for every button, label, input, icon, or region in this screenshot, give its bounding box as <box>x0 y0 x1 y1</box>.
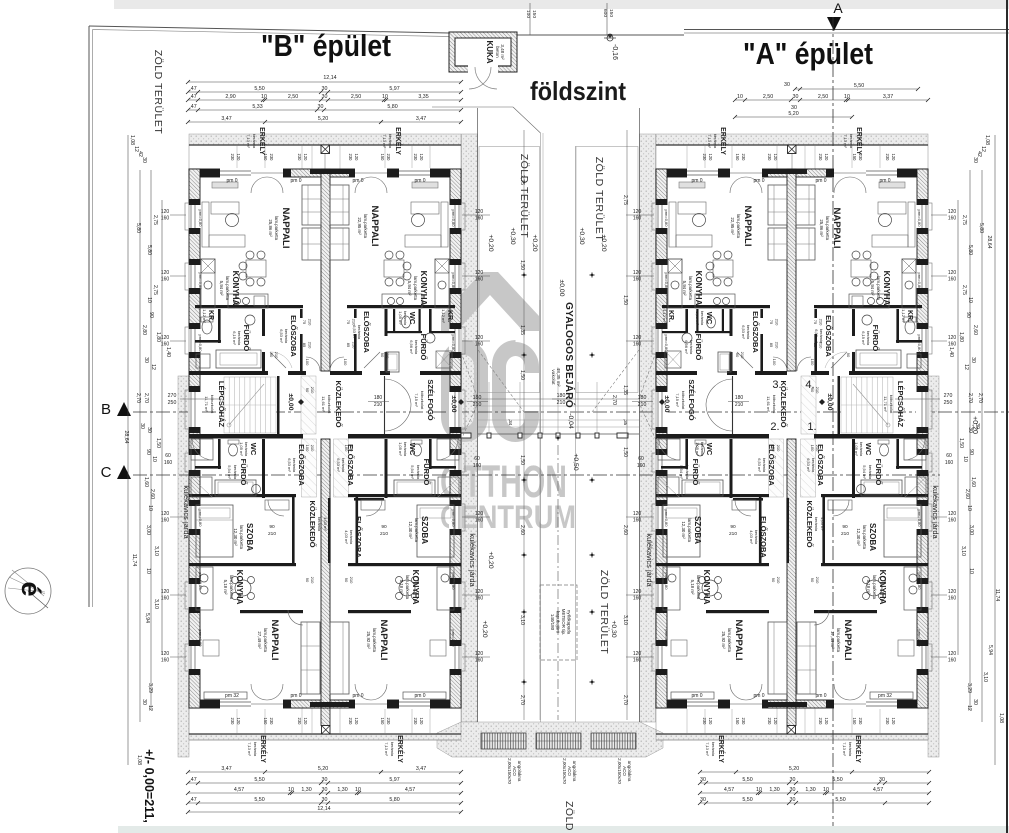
svg-text:120: 120 <box>708 718 713 726</box>
svg-text:210: 210 <box>473 402 482 408</box>
svg-text:12: 12 <box>150 364 156 370</box>
svg-text:30: 30 <box>972 699 978 705</box>
svg-text:10: 10 <box>968 568 974 574</box>
svg-text:5,94 m²: 5,94 m² <box>219 281 224 296</box>
svg-text:160: 160 <box>473 463 482 469</box>
svg-text:angolakna: angolakna <box>627 761 632 782</box>
svg-text:60: 60 <box>638 456 644 462</box>
svg-text:KR.: KR. <box>207 310 214 322</box>
svg-text:120: 120 <box>633 335 642 341</box>
svg-text:ACO: ACO <box>622 766 627 776</box>
svg-text:ELŐSZOBA: ELŐSZOBA <box>354 516 363 558</box>
svg-text:kapubejáró: kapubejáró <box>556 611 561 634</box>
svg-text:230: 230 <box>230 718 235 726</box>
svg-text:90: 90 <box>730 524 736 530</box>
svg-text:210: 210 <box>352 319 357 326</box>
svg-text:5,50: 5,50 <box>742 797 752 803</box>
svg-text:3,48 m²: 3,48 m² <box>500 44 505 60</box>
svg-text:160: 160 <box>948 216 957 222</box>
svg-text:160: 160 <box>633 658 642 664</box>
svg-text:NAPPALI: NAPPALI <box>269 620 280 661</box>
svg-text:pm 0: pm 0 <box>753 693 764 699</box>
svg-text:160: 160 <box>637 463 646 469</box>
svg-text:NAPPALI: NAPPALI <box>369 206 380 247</box>
svg-text:pm 0: pm 0 <box>290 693 301 699</box>
svg-text:230: 230 <box>413 154 418 162</box>
svg-text:4,57: 4,57 <box>405 787 415 793</box>
svg-text:7,13 m²: 7,13 m² <box>246 134 251 148</box>
svg-text:75: 75 <box>769 320 774 325</box>
svg-text:210: 210 <box>735 402 744 408</box>
svg-text:ERKÉLY: ERKÉLY <box>855 127 864 155</box>
svg-text:25,86 m²: 25,86 m² <box>268 219 273 237</box>
svg-text:NAPPALI: NAPPALI <box>831 208 842 249</box>
svg-text:+0,30: +0,30 <box>509 227 516 244</box>
svg-text:90: 90 <box>846 353 851 358</box>
svg-text:pm 0: pm 0 <box>290 178 301 184</box>
svg-text:A: A <box>833 0 843 16</box>
svg-text:+0,30: +0,30 <box>578 227 585 244</box>
svg-text:160: 160 <box>475 596 484 602</box>
svg-text:120: 120 <box>303 718 308 726</box>
svg-text:1,60: 1,60 <box>143 477 149 487</box>
svg-text:,47: ,47 <box>189 797 196 803</box>
svg-text:1,12 m²: 1,12 m² <box>202 309 207 323</box>
svg-text:2,70: 2,70 <box>135 393 141 403</box>
svg-text:SZOBA: SZOBA <box>693 516 702 544</box>
svg-text:27,49 m²: 27,49 m² <box>830 631 835 649</box>
svg-text:KONYHA: KONYHA <box>878 570 887 605</box>
svg-text:30: 30 <box>790 797 796 803</box>
svg-text:1,35: 1,35 <box>519 325 525 335</box>
svg-text:120: 120 <box>419 718 424 726</box>
svg-text:KONYHA: KONYHA <box>419 271 428 306</box>
svg-text:ACO: ACO <box>512 766 517 776</box>
svg-text:210: 210 <box>268 531 276 537</box>
svg-text:1,30: 1,30 <box>805 787 815 793</box>
svg-text:lam.parketta: lam.parketta <box>727 628 732 653</box>
svg-text:120: 120 <box>773 154 778 162</box>
svg-text:lam.parketta: lam.parketta <box>688 276 693 301</box>
svg-text:7,13 m²: 7,13 m² <box>382 134 387 148</box>
svg-text:1,50: 1,50 <box>519 455 525 465</box>
svg-text:30: 30 <box>972 157 978 163</box>
svg-text:WC: WC <box>705 443 714 456</box>
svg-text:5,50: 5,50 <box>254 86 264 92</box>
svg-text:210: 210 <box>274 352 279 359</box>
svg-text:3,10: 3,10 <box>960 546 966 556</box>
svg-text:+0,20: +0,20 <box>971 416 978 434</box>
svg-text:11,61 m²: 11,61 m² <box>766 396 771 412</box>
svg-text:KR.: KR. <box>446 310 453 322</box>
svg-text:NAPPALI: NAPPALI <box>733 620 744 661</box>
svg-text:+0,20: +0,20 <box>487 551 494 568</box>
svg-text:1,12 m²: 1,12 m² <box>662 309 667 323</box>
svg-text:ELŐSZOBA: ELŐSZOBA <box>824 315 833 357</box>
svg-text:ZÖLD TERÜLET: ZÖLD TERÜLET <box>152 50 164 135</box>
svg-text:25,92 m²: 25,92 m² <box>721 631 726 649</box>
svg-text:90: 90 <box>965 312 971 318</box>
svg-text:lam.parketta: lam.parketta <box>736 214 741 239</box>
svg-text:kerámia: kerámia <box>685 465 690 480</box>
svg-text:160: 160 <box>164 460 173 466</box>
svg-text:ELŐSZOBA: ELŐSZOBA <box>759 516 768 558</box>
svg-text:10: 10 <box>147 505 153 511</box>
svg-text:"A" épület: "A" épület <box>743 36 873 71</box>
svg-text:160: 160 <box>161 596 170 602</box>
svg-text:100: 100 <box>810 359 815 366</box>
svg-text:150: 150 <box>263 154 268 162</box>
svg-text:prm=0,80: prm=0,80 <box>198 272 203 290</box>
svg-text:5,94: 5,94 <box>987 645 993 655</box>
svg-text:160: 160 <box>948 658 957 664</box>
svg-text:köburkolat: köburkolat <box>681 391 686 410</box>
svg-text:4,57: 4,57 <box>234 787 244 793</box>
svg-text:230: 230 <box>297 718 302 726</box>
svg-text:1,05 m²: 1,05 m² <box>239 442 244 456</box>
svg-text:30: 30 <box>322 787 328 793</box>
svg-text:+0,20: +0,20 <box>481 620 488 637</box>
svg-text:10: 10 <box>967 297 973 303</box>
svg-text:ERKÉLY: ERKÉLY <box>719 127 728 155</box>
svg-text:2,75: 2,75 <box>152 215 158 225</box>
svg-text:,47: ,47 <box>189 86 196 92</box>
svg-text:210: 210 <box>308 319 313 326</box>
svg-text:100: 100 <box>305 445 310 452</box>
svg-text:köburkolat: köburkolat <box>210 395 215 414</box>
svg-text:30: 30 <box>139 423 145 429</box>
svg-text:120: 120 <box>161 511 170 517</box>
svg-text:kerámia: kerámia <box>416 465 421 480</box>
svg-text:2,00x150x70: 2,00x150x70 <box>507 758 512 784</box>
svg-text:+0,30: +0,30 <box>610 620 617 637</box>
svg-text:prm=0,80: prm=0,80 <box>917 209 922 227</box>
svg-text:22,95 m²: 22,95 m² <box>730 217 735 235</box>
svg-text:12,30 m²: 12,30 m² <box>233 528 238 546</box>
svg-text:WC: WC <box>864 443 873 456</box>
svg-text:230: 230 <box>230 154 235 162</box>
svg-text:prm=0,80: prm=0,80 <box>198 509 203 527</box>
svg-text:75: 75 <box>346 320 351 325</box>
svg-text:210: 210 <box>819 342 824 349</box>
svg-text:120: 120 <box>236 718 241 726</box>
svg-text:2,60: 2,60 <box>964 489 970 499</box>
svg-text:1,30: 1,30 <box>769 787 779 793</box>
svg-text:5,20: 5,20 <box>318 116 328 122</box>
svg-text:prm=0,80: prm=0,80 <box>664 509 669 527</box>
svg-text:150: 150 <box>735 154 740 162</box>
svg-text:5,20: 5,20 <box>789 766 799 772</box>
svg-text:160: 160 <box>475 658 484 664</box>
svg-text:köburkolat: köburkolat <box>889 395 894 414</box>
svg-text:210: 210 <box>310 577 315 584</box>
svg-text:2,50: 2,50 <box>288 94 298 100</box>
svg-text:230: 230 <box>885 718 890 726</box>
svg-text:150: 150 <box>852 154 857 162</box>
svg-text:230: 230 <box>767 718 772 726</box>
svg-text:230: 230 <box>413 718 418 726</box>
svg-text:150: 150 <box>531 10 537 18</box>
svg-text:150: 150 <box>608 9 614 17</box>
svg-text:230: 230 <box>386 718 391 726</box>
svg-text:±0,00: ±0,00 <box>826 394 833 411</box>
svg-text:prm=0,80: prm=0,80 <box>198 334 203 352</box>
svg-text:prm=0,80: prm=0,80 <box>198 209 203 227</box>
svg-text:2,60: 2,60 <box>149 489 155 499</box>
svg-text:7,13 m²: 7,13 m² <box>247 742 252 756</box>
svg-text:2,70: 2,70 <box>519 695 525 705</box>
svg-text:pm 0: pm 0 <box>226 178 237 184</box>
svg-text:ELŐSZOBA: ELŐSZOBA <box>362 311 371 353</box>
svg-text:30: 30 <box>146 427 152 433</box>
svg-text:prm=0,80: prm=0,80 <box>451 334 456 352</box>
svg-text:2,50: 2,50 <box>351 94 361 100</box>
svg-text:NAPPALI: NAPPALI <box>378 620 389 661</box>
svg-text:METEOR tip.: METEOR tip. <box>561 609 566 636</box>
svg-text:3,29: 3,29 <box>966 683 972 693</box>
svg-text:230: 230 <box>348 154 353 162</box>
svg-text:FÜRDŐ: FÜRDŐ <box>422 459 431 486</box>
svg-text:lam.parketta: lam.parketta <box>229 575 234 600</box>
svg-text:lam.parketta: lam.parketta <box>836 628 841 653</box>
svg-text:12,30 m²: 12,30 m² <box>681 521 686 539</box>
svg-text:KÖZLEKEDŐ: KÖZLEKEDŐ <box>308 500 317 547</box>
svg-text:WC: WC <box>408 312 417 325</box>
svg-text:1,08: 1,08 <box>136 755 142 765</box>
svg-text:100: 100 <box>771 445 776 452</box>
svg-text:kerámia: kerámia <box>388 134 393 149</box>
svg-text:1,50: 1,50 <box>155 438 161 448</box>
svg-text:5,50: 5,50 <box>835 797 845 803</box>
svg-text:210: 210 <box>740 352 745 359</box>
svg-text:5,20: 5,20 <box>318 766 328 772</box>
svg-text:ZÖLD: ZÖLD <box>563 801 575 831</box>
svg-text:prm=0,80: prm=0,80 <box>451 572 456 590</box>
svg-text:60: 60 <box>946 453 952 459</box>
svg-text:30: 30 <box>322 777 328 783</box>
svg-text:prm=0,80: prm=0,80 <box>198 572 203 590</box>
svg-text:30: 30 <box>879 777 885 783</box>
svg-text:90: 90 <box>269 524 275 530</box>
svg-text:90: 90 <box>968 449 974 455</box>
svg-text:pm 0: pm 0 <box>414 178 425 184</box>
svg-text:120: 120 <box>475 589 484 595</box>
svg-text:prm=0,80: prm=0,80 <box>917 629 922 647</box>
svg-text:150: 150 <box>380 718 385 726</box>
svg-text:kerámia: kerámia <box>814 517 819 532</box>
svg-text:4,57: 4,57 <box>724 787 734 793</box>
svg-text:100: 100 <box>343 359 348 366</box>
svg-text:5,50: 5,50 <box>854 83 864 89</box>
svg-text:2,50: 2,50 <box>763 94 773 100</box>
svg-text:100: 100 <box>305 359 310 366</box>
svg-text:210: 210 <box>349 577 354 584</box>
svg-text:lam.parketta: lam.parketta <box>263 628 268 653</box>
svg-text:prm=0,80: prm=0,80 <box>451 209 456 227</box>
svg-text:lam.parketta: lam.parketta <box>876 276 881 301</box>
svg-text:230: 230 <box>858 154 863 162</box>
svg-text:230: 230 <box>269 154 274 162</box>
svg-text:42: 42 <box>137 151 143 157</box>
svg-text:lam.parketta: lam.parketta <box>413 276 418 301</box>
svg-text:10: 10 <box>382 94 388 100</box>
svg-text:angolakna: angolakna <box>572 761 577 782</box>
svg-text:28,64: 28,64 <box>986 236 992 249</box>
svg-text:42: 42 <box>976 151 982 157</box>
svg-text:KÖZLEKEDŐ: KÖZLEKEDŐ <box>805 500 814 547</box>
svg-text:2,00x150x70: 2,00x150x70 <box>617 758 622 784</box>
svg-text:köburkolat: köburkolat <box>327 395 332 414</box>
svg-text:C: C <box>101 464 112 481</box>
svg-text:pm 0: pm 0 <box>815 693 826 699</box>
svg-text:FÜRDŐ: FÜRDŐ <box>419 334 428 361</box>
svg-text:lam.parketta: lam.parketta <box>405 575 410 600</box>
svg-text:30: 30 <box>322 94 328 100</box>
svg-text:1,05 m²: 1,05 m² <box>854 442 859 456</box>
svg-text:210: 210 <box>815 577 820 584</box>
svg-text:160: 160 <box>633 518 642 524</box>
svg-text:75: 75 <box>813 320 818 325</box>
svg-text:3,10: 3,10 <box>519 615 525 625</box>
svg-text:3,47: 3,47 <box>221 116 231 122</box>
svg-text:SZÉLFOGÓ: SZÉLFOGÓ <box>426 379 435 420</box>
svg-text:4,03 m²: 4,03 m² <box>323 517 328 531</box>
svg-text:KÖZLEKEDŐ: KÖZLEKEDŐ <box>334 380 343 427</box>
svg-text:ERKÉLY: ERKÉLY <box>717 735 726 763</box>
svg-text:160: 160 <box>945 460 954 466</box>
svg-text:5,80: 5,80 <box>146 245 152 255</box>
svg-text:6,53 m²: 6,53 m² <box>814 329 819 343</box>
svg-text:2,70: 2,70 <box>143 393 149 403</box>
svg-text:120: 120 <box>633 209 642 215</box>
svg-text:120: 120 <box>633 589 642 595</box>
svg-text:90: 90 <box>810 578 815 583</box>
svg-text:kerámia: kerámia <box>848 742 853 757</box>
svg-text:2,00x150x70: 2,00x150x70 <box>562 758 567 784</box>
svg-text:6,96 m²: 6,96 m² <box>684 340 689 354</box>
svg-text:5,50: 5,50 <box>742 777 752 783</box>
svg-text:3,35: 3,35 <box>418 94 428 100</box>
svg-text:lam.parketta: lam.parketta <box>239 525 244 550</box>
svg-text:1,60: 1,60 <box>970 477 976 487</box>
svg-text:10: 10 <box>962 456 968 462</box>
svg-text:1,30: 1,30 <box>301 787 311 793</box>
svg-text:230: 230 <box>702 718 707 726</box>
svg-text:7,13 m²: 7,13 m² <box>843 134 848 148</box>
svg-text:210: 210 <box>776 577 781 584</box>
svg-text:120: 120 <box>161 209 170 215</box>
svg-text:pm 32: pm 32 <box>225 693 239 699</box>
svg-text:prm=0,80: prm=0,80 <box>917 572 922 590</box>
svg-text:210: 210 <box>815 445 820 452</box>
svg-text:1,12 m²: 1,12 m² <box>441 309 446 323</box>
svg-text:6,53 m²: 6,53 m² <box>336 458 341 472</box>
svg-text:160: 160 <box>633 342 642 348</box>
svg-text:5,94 m²: 5,94 m² <box>410 465 415 479</box>
svg-text:NAPPALI: NAPPALI <box>280 208 291 249</box>
svg-text:22,95 m²: 22,95 m² <box>357 217 362 235</box>
svg-text:köburkolat: köburkolat <box>420 391 425 410</box>
svg-text:WC: WC <box>408 443 417 456</box>
svg-text:30: 30 <box>318 104 324 110</box>
svg-text:+/- 0,00=211,: +/- 0,00=211, <box>142 749 156 823</box>
svg-text:120: 120 <box>708 154 713 162</box>
svg-text:KONYHA: KONYHA <box>235 570 244 605</box>
svg-text:5,94: 5,94 <box>144 613 150 623</box>
svg-text:10: 10 <box>145 568 151 574</box>
svg-text:30: 30 <box>143 357 149 363</box>
svg-text:6,53 m²: 6,53 m² <box>757 458 762 472</box>
svg-text:30: 30 <box>322 86 328 92</box>
svg-text:120: 120 <box>948 335 957 341</box>
svg-text:12: 12 <box>147 705 153 711</box>
svg-text:prm=0,80: prm=0,80 <box>664 572 669 590</box>
svg-text:27,49 m²: 27,49 m² <box>257 631 262 649</box>
svg-text:3,47: 3,47 <box>416 766 426 772</box>
svg-text:160: 160 <box>161 216 170 222</box>
svg-text:120: 120 <box>475 511 484 517</box>
svg-text:5,50: 5,50 <box>832 777 842 783</box>
svg-text:230: 230 <box>741 154 746 162</box>
svg-text:kerámia: kerámia <box>253 742 258 757</box>
svg-text:1,30: 1,30 <box>337 787 347 793</box>
svg-text:210: 210 <box>352 342 357 349</box>
svg-text:230: 230 <box>741 718 746 726</box>
svg-text:2,60: 2,60 <box>519 525 525 535</box>
svg-text:prm=0,80: prm=0,80 <box>198 629 203 647</box>
svg-text:2,75: 2,75 <box>519 175 525 185</box>
svg-text:210: 210 <box>841 531 849 537</box>
svg-text:2,50: 2,50 <box>818 94 828 100</box>
svg-text:160: 160 <box>475 518 484 524</box>
svg-text:lam.parketta: lam.parketta <box>872 575 877 600</box>
svg-text:-0,16: -0,16 <box>611 44 618 60</box>
svg-text:5,94 m²: 5,94 m² <box>679 465 684 479</box>
svg-text:pm 32: pm 32 <box>878 693 892 699</box>
svg-text:nyílókapuda: nyílókapuda <box>567 610 572 635</box>
svg-text:270: 270 <box>944 393 953 399</box>
svg-text:3,37: 3,37 <box>883 94 893 100</box>
svg-text:prm=0,80: prm=0,80 <box>451 629 456 647</box>
svg-text:WC: WC <box>249 443 258 456</box>
svg-text:5,80: 5,80 <box>978 223 984 233</box>
svg-text:1,05 m²: 1,05 m² <box>398 311 403 325</box>
svg-text:12: 12 <box>963 364 969 370</box>
svg-text:90: 90 <box>842 524 848 530</box>
svg-text:±0,00: ±0,00 <box>663 396 670 413</box>
svg-text:90: 90 <box>735 353 740 358</box>
svg-text:120: 120 <box>161 270 170 276</box>
svg-text:150: 150 <box>380 154 385 162</box>
svg-text:5,94 m²: 5,94 m² <box>682 281 687 296</box>
svg-text:kulékavics járda: kulékavics járda <box>645 533 654 587</box>
svg-text:180: 180 <box>638 395 647 401</box>
svg-text:5,94 m²: 5,94 m² <box>862 465 867 479</box>
svg-text:90: 90 <box>145 449 151 455</box>
svg-text:48,35 m²: 48,35 m² <box>555 368 561 387</box>
svg-text:25,92 m²: 25,92 m² <box>366 631 371 649</box>
svg-text:,47: ,47 <box>189 104 196 110</box>
svg-text:6,53 m²: 6,53 m² <box>287 458 292 472</box>
svg-text:1.: 1. <box>807 421 816 433</box>
svg-text:FÜRDŐ: FÜRDŐ <box>694 334 703 361</box>
svg-text:6,53 m²: 6,53 m² <box>279 329 284 343</box>
svg-text:4,57: 4,57 <box>873 787 883 793</box>
svg-text:KUKA: KUKA <box>485 40 494 63</box>
svg-text:120: 120 <box>948 589 957 595</box>
svg-text:230: 230 <box>818 154 823 162</box>
svg-text:210: 210 <box>349 445 354 452</box>
